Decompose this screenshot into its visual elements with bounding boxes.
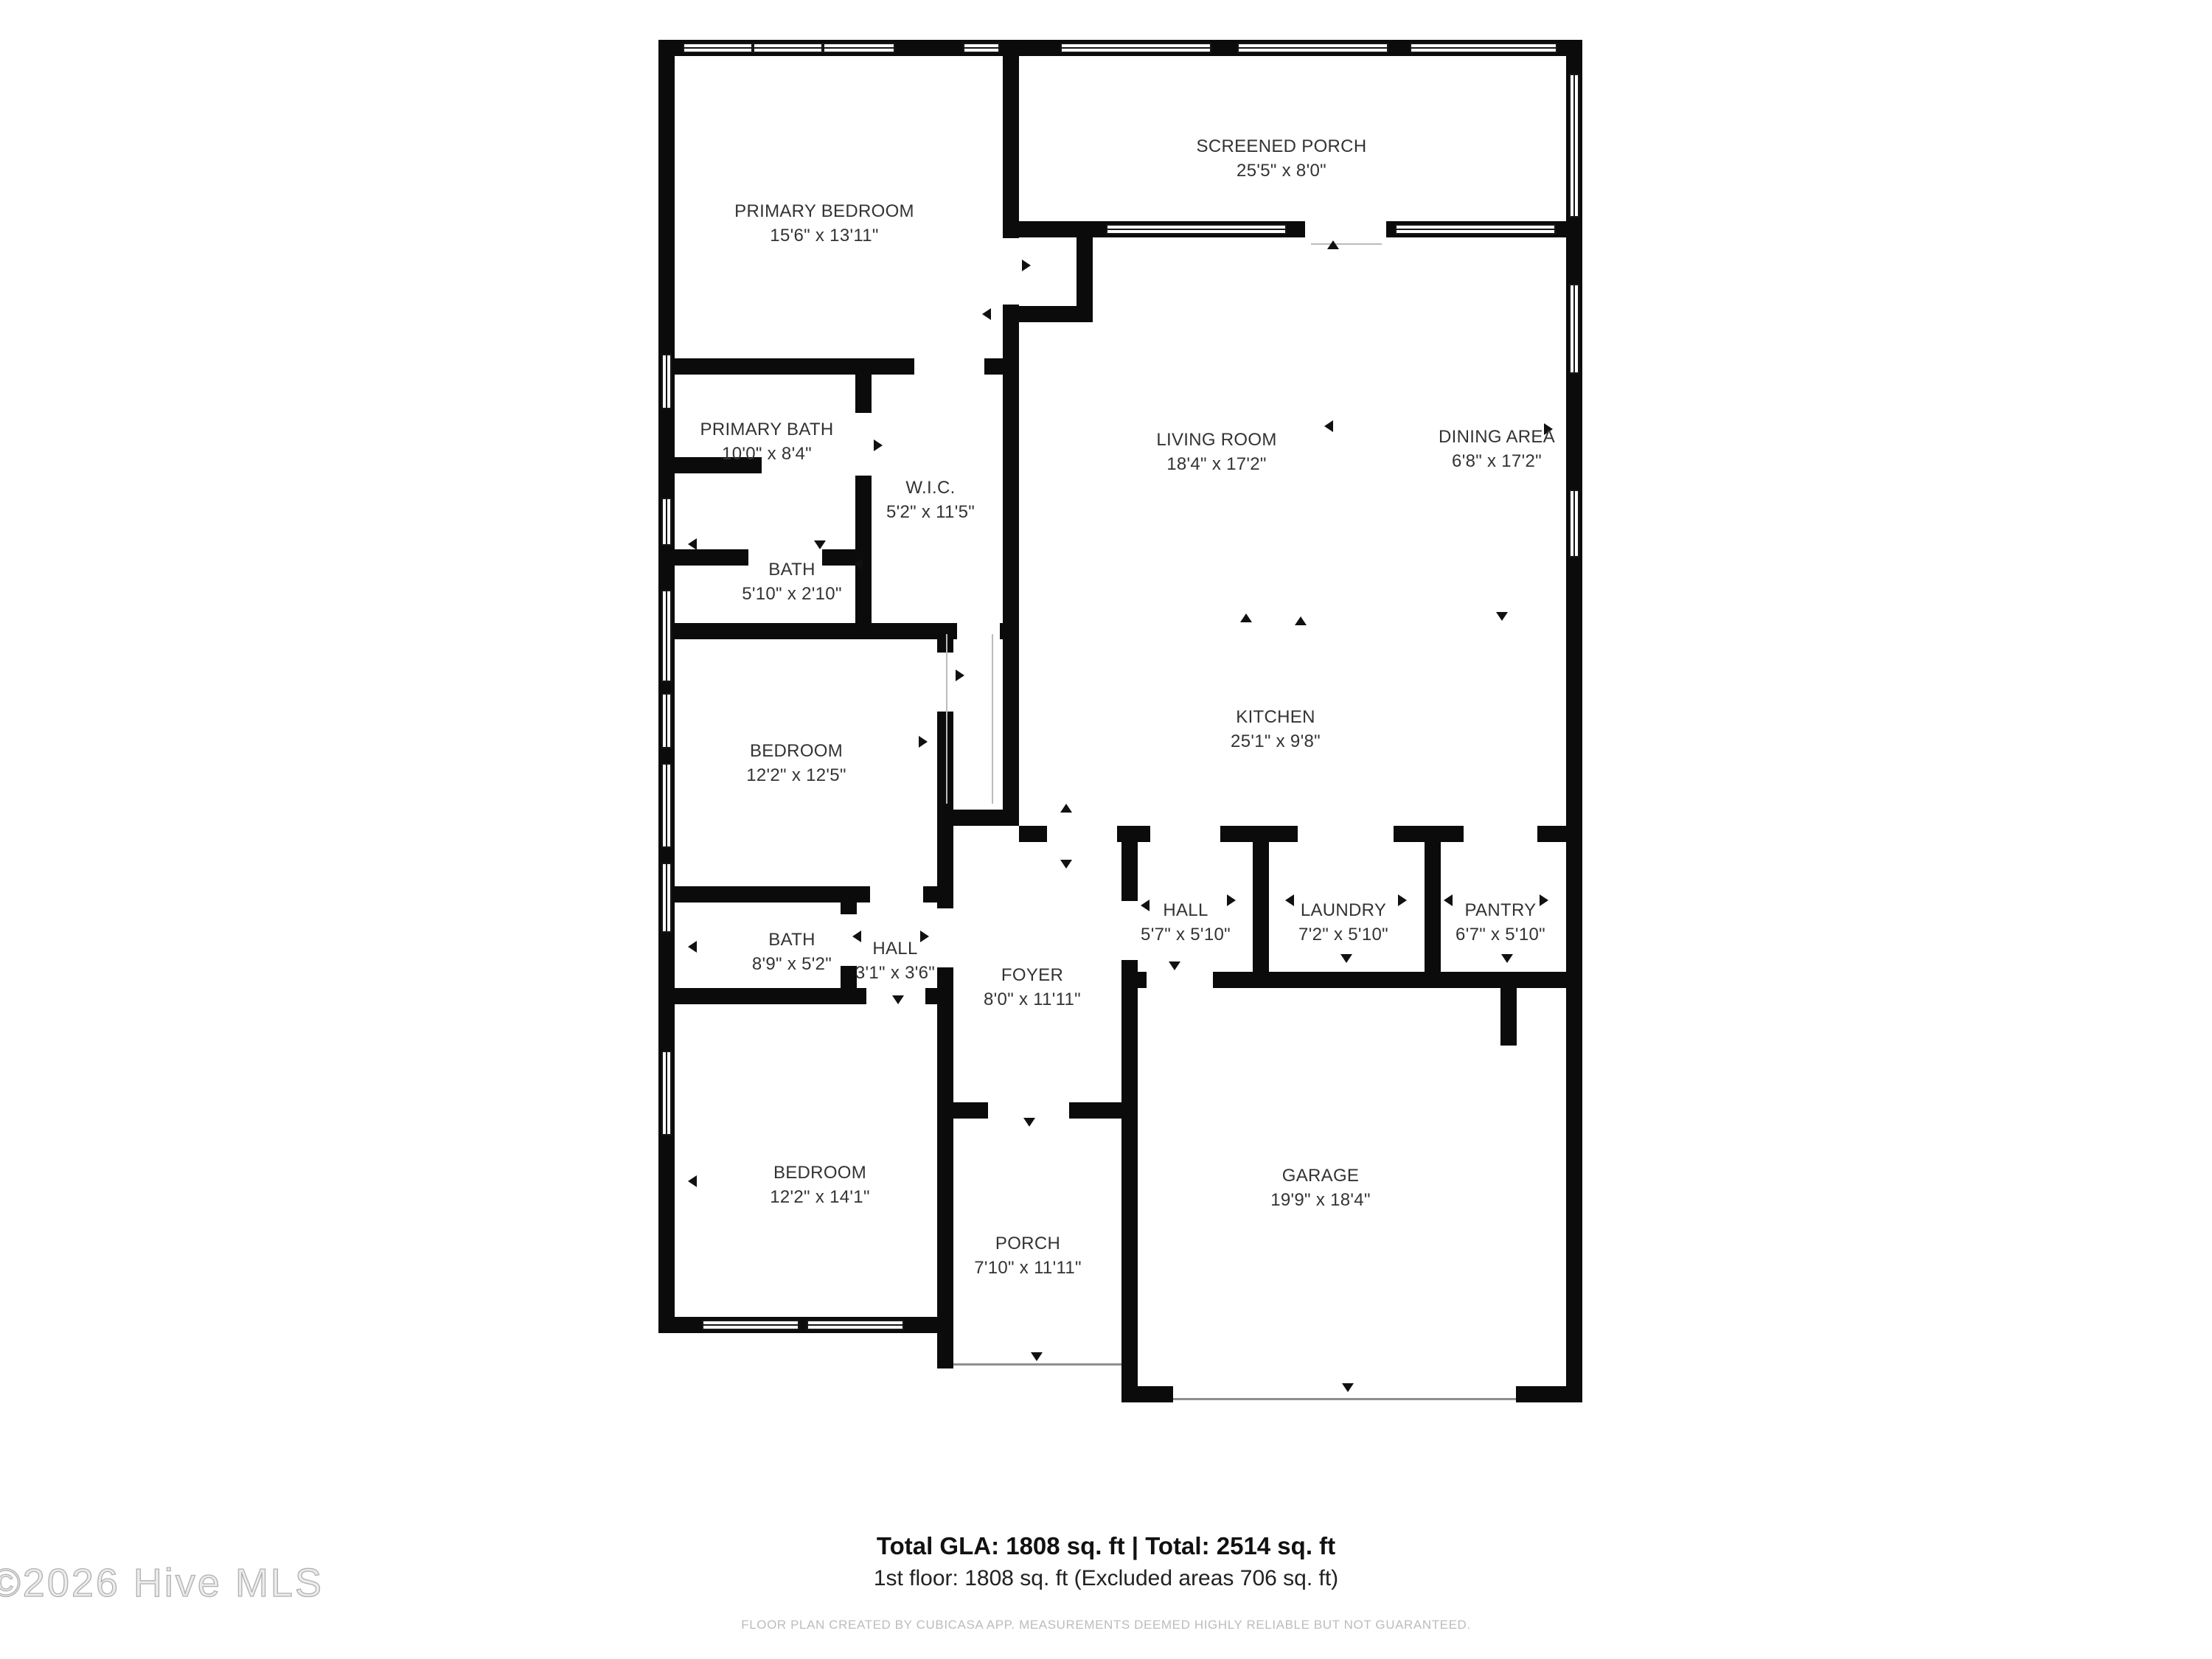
- room-label-bedroom-2: BEDROOM 12'2" x 14'1": [770, 1161, 870, 1209]
- room-label-hall: HALL 5'7" x 5'10": [1141, 898, 1231, 947]
- window: [661, 863, 672, 933]
- room-dims: 12'2" x 14'1": [770, 1185, 870, 1209]
- room-label-garage: GARAGE 19'9" x 18'4": [1270, 1164, 1371, 1212]
- wall-opening: [1003, 238, 1019, 305]
- room-dims: 7'2" x 5'10": [1298, 922, 1388, 947]
- mls-watermark: ©2026 Hive MLS: [0, 1560, 324, 1606]
- room-dims: 8'9" x 5'2": [752, 952, 832, 976]
- window: [661, 590, 672, 682]
- porch-step-line: [1311, 243, 1382, 245]
- room-dims: 19'9" x 18'4": [1270, 1188, 1371, 1212]
- wall-opening: [870, 886, 923, 902]
- wall: [1003, 306, 1093, 322]
- wall: [1003, 221, 1093, 237]
- closet-shelf-line: [992, 634, 993, 804]
- window: [661, 1051, 672, 1135]
- window: [1060, 43, 1211, 53]
- closet-shelf-line: [946, 634, 947, 804]
- wall-opening: [855, 413, 872, 476]
- wall: [937, 810, 1019, 826]
- room-name: SCREENED PORCH: [1197, 134, 1367, 159]
- door-swing-icon: [1169, 961, 1180, 970]
- window: [661, 498, 672, 546]
- room-label-laundry: LAUNDRY 7'2" x 5'10": [1298, 898, 1388, 947]
- room-name: PRIMARY BATH: [700, 417, 834, 442]
- room-label-primary-bath: PRIMARY BATH 10'0" x 8'4": [700, 417, 834, 466]
- wall-opening: [1147, 972, 1213, 988]
- door-swing-icon: [874, 439, 883, 451]
- window: [1569, 74, 1579, 218]
- wall: [937, 826, 953, 1366]
- window: [823, 43, 895, 53]
- room-name: W.I.C.: [886, 476, 975, 500]
- wall-opening: [937, 653, 953, 712]
- door-swing-icon: [814, 540, 826, 549]
- window: [807, 1320, 904, 1330]
- window: [661, 354, 672, 409]
- room-name: DINING AREA: [1439, 425, 1555, 449]
- room-name: HALL: [1141, 898, 1231, 922]
- door-swing-icon: [1496, 612, 1508, 621]
- room-label-bedroom-1: BEDROOM 12'2" x 12'5": [746, 739, 846, 787]
- porch-edge-line: [953, 1363, 1121, 1366]
- door-swing-icon: [956, 669, 964, 681]
- door-swing-icon: [688, 1175, 697, 1187]
- door-swing-icon: [1060, 860, 1072, 869]
- room-name: BEDROOM: [746, 739, 846, 763]
- room-name: BEDROOM: [770, 1161, 870, 1185]
- room-label-porch: PORCH 7'10" x 11'11": [974, 1231, 1082, 1280]
- window: [963, 43, 1000, 53]
- room-name: PORCH: [974, 1231, 1082, 1256]
- room-dims: 25'5" x 8'0": [1197, 159, 1367, 183]
- door-swing-icon: [1295, 616, 1307, 625]
- door-swing-icon: [1340, 954, 1352, 963]
- wall: [1516, 1386, 1582, 1402]
- room-name: KITCHEN: [1231, 705, 1321, 729]
- door-swing-icon: [1031, 1352, 1043, 1361]
- room-label-bath-2: BATH 8'9" x 5'2": [752, 928, 832, 976]
- wall: [1253, 842, 1269, 972]
- floor-plan-page: { "watermark": "©2026 Hive MLS", "summar…: [0, 0, 2212, 1659]
- room-dims: 5'10" x 2'10": [742, 582, 842, 606]
- window: [1410, 43, 1557, 53]
- room-label-screened-porch: SCREENED PORCH 25'5" x 8'0": [1197, 134, 1367, 183]
- wall: [1003, 623, 1019, 810]
- door-swing-icon: [1501, 954, 1513, 963]
- window: [661, 693, 672, 748]
- wall-opening: [1047, 826, 1117, 842]
- window: [1569, 490, 1579, 557]
- room-name: PRIMARY BEDROOM: [734, 199, 914, 223]
- room-label-pantry: PANTRY 6'7" x 5'10": [1455, 898, 1545, 947]
- room-dims: 10'0" x 8'4": [700, 442, 834, 466]
- wall: [1566, 40, 1582, 1402]
- room-dims: 18'4" x 17'2": [1156, 452, 1276, 476]
- room-dims: 15'6" x 13'11": [734, 223, 914, 248]
- door-swing-icon: [854, 558, 863, 570]
- room-name: PANTRY: [1455, 898, 1545, 922]
- wall: [1077, 237, 1093, 306]
- disclaimer-text: FLOOR PLAN CREATED BY CUBICASA APP. MEAS…: [0, 1618, 2212, 1632]
- room-dims: 6'7" x 5'10": [1455, 922, 1545, 947]
- wall-opening: [957, 623, 1000, 639]
- door-swing-icon: [1444, 894, 1453, 906]
- window: [661, 763, 672, 848]
- wall: [658, 40, 675, 1333]
- room-label-foyer: FOYER 8'0" x 11'11": [984, 963, 1081, 1012]
- room-dims: 25'1" x 9'8": [1231, 729, 1321, 754]
- door-swing-icon: [688, 941, 697, 953]
- room-name: LAUNDRY: [1298, 898, 1388, 922]
- room-label-wic: W.I.C. 5'2" x 11'5": [886, 476, 975, 524]
- room-name: HALL: [855, 936, 935, 961]
- room-label-kitchen: KITCHEN 25'1" x 9'8": [1231, 705, 1321, 754]
- door-swing-icon: [919, 736, 928, 748]
- wall: [1425, 842, 1441, 972]
- room-label-dining-area: DINING AREA 6'8" x 17'2": [1439, 425, 1555, 473]
- window: [683, 43, 753, 53]
- window: [1237, 43, 1388, 53]
- room-label-bath-small: BATH 5'10" x 2'10": [742, 557, 842, 606]
- room-name: FOYER: [984, 963, 1081, 987]
- room-label-living-room: LIVING ROOM 18'4" x 17'2": [1156, 428, 1276, 476]
- garage-door-line: [1173, 1398, 1516, 1400]
- wall-opening: [914, 358, 984, 375]
- wall: [1003, 375, 1019, 639]
- room-dims: 3'1" x 3'6": [855, 961, 935, 985]
- door-swing-icon: [1285, 894, 1294, 906]
- window: [1106, 224, 1287, 234]
- room-dims: 12'2" x 12'5": [746, 763, 846, 787]
- door-swing-icon: [1060, 804, 1072, 813]
- room-label-hall-small: HALL 3'1" x 3'6": [855, 936, 935, 985]
- wall-opening: [988, 1102, 1069, 1119]
- wall-opening: [1464, 826, 1537, 842]
- wall: [1500, 988, 1517, 1046]
- floor-plan: PRIMARY BEDROOM 15'6" x 13'11" SCREENED …: [0, 0, 2212, 1659]
- window: [1569, 284, 1579, 374]
- room-dims: 5'7" x 5'10": [1141, 922, 1231, 947]
- window: [702, 1320, 799, 1330]
- wall: [1121, 1386, 1173, 1402]
- door-swing-icon: [1327, 240, 1339, 249]
- wall-opening: [1121, 901, 1138, 960]
- room-dims: 7'10" x 11'11": [974, 1256, 1082, 1280]
- floor-area-detail: 1st floor: 1808 sq. ft (Excluded areas 7…: [0, 1566, 2212, 1591]
- door-swing-icon: [1398, 894, 1407, 906]
- door-swing-icon: [1342, 1383, 1354, 1392]
- room-dims: 5'2" x 11'5": [886, 500, 975, 524]
- door-swing-icon: [1240, 613, 1252, 622]
- room-label-primary-bedroom: PRIMARY BEDROOM 15'6" x 13'11": [734, 199, 914, 248]
- window: [1395, 224, 1556, 234]
- wall: [1003, 56, 1019, 375]
- room-name: BATH: [742, 557, 842, 582]
- door-swing-icon: [982, 308, 991, 320]
- wall-opening: [1150, 826, 1220, 842]
- room-dims: 8'0" x 11'11": [984, 987, 1081, 1012]
- room-name: LIVING ROOM: [1156, 428, 1276, 452]
- room-dims: 6'8" x 17'2": [1439, 449, 1555, 473]
- room-name: GARAGE: [1270, 1164, 1371, 1188]
- window: [753, 43, 823, 53]
- door-swing-icon: [1023, 1118, 1035, 1127]
- wall-opening: [1305, 221, 1386, 237]
- door-swing-icon: [688, 538, 697, 550]
- total-area-summary: Total GLA: 1808 sq. ft | Total: 2514 sq.…: [0, 1532, 2212, 1560]
- wall-opening: [1298, 826, 1394, 842]
- door-swing-icon: [1324, 420, 1333, 432]
- wall-opening: [937, 908, 953, 967]
- door-swing-icon: [892, 995, 904, 1004]
- door-swing-icon: [1022, 260, 1031, 271]
- wall: [937, 623, 953, 810]
- room-name: BATH: [752, 928, 832, 952]
